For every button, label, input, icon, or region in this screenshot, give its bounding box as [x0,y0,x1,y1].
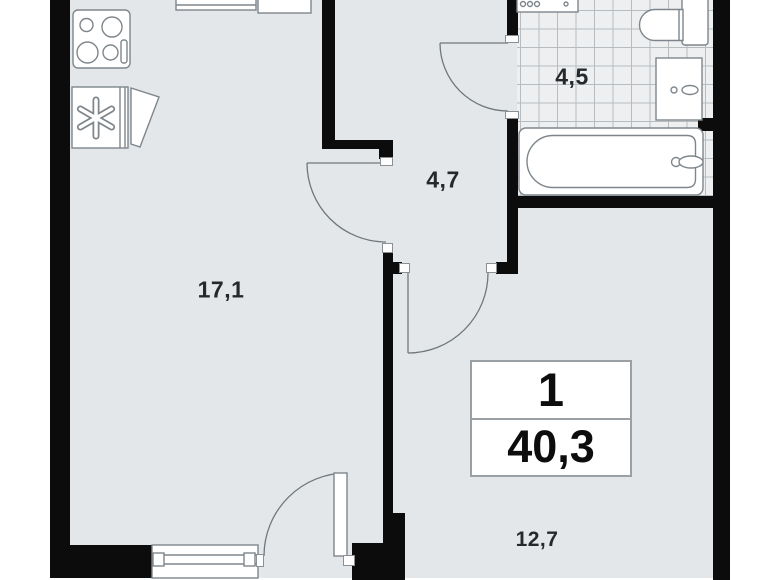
jamb-living-door [380,157,393,166]
kitchen-sink-counter-icon [258,0,311,13]
jamb-bedroom-door-left [399,263,410,273]
stove-burner-small-2 [103,45,118,60]
living-door-arc [307,163,386,242]
jamb-entrance-door [343,555,355,566]
bathtub-faucet [679,156,703,168]
sink-faucet [682,86,698,95]
jamb-bathroom-door-top [505,35,519,43]
window-end-block-right [244,553,255,566]
jamb-bedroom-door-right [486,263,497,273]
room-count-value: 1 [472,362,630,420]
window-frame [152,545,258,578]
sink-drain [671,87,677,93]
floorplan-canvas: 17,1 4,7 4,5 12,7 1 40,3 [0,0,780,580]
jamb-bathroom-door-bottom [505,111,519,119]
fixtures-layer [0,0,780,580]
jamb-divider-top [382,243,393,253]
area-label-hallway: 4,7 [426,167,459,194]
stove-handle [121,40,127,63]
area-label-bathroom: 4,5 [555,64,588,91]
toilet-icon [640,10,684,41]
jamb-window-right [256,554,264,567]
fridge-open-door [131,88,159,147]
stove-burner-large-1 [102,17,122,37]
toilet-tank [682,0,708,45]
area-label-living-kitchen: 17,1 [198,277,245,304]
total-area-value: 40,3 [472,420,630,476]
bathtub-inner [527,136,696,188]
washer-knob-2 [528,2,533,7]
bathroom-door-arc [440,43,508,111]
stove-burner-small-1 [80,19,93,32]
stove-burner-large-2 [77,42,98,63]
window-end-block-left [153,553,164,566]
bedroom-door-arc [408,273,488,353]
entrance-door-leaf [334,473,347,556]
washer-icon [517,0,578,12]
washer-knob-3 [535,2,540,7]
area-label-bedroom: 12,7 [516,528,559,552]
apartment-summary-box: 1 40,3 [470,360,632,477]
washer-knob-1 [521,2,526,7]
washer-knob-4 [564,2,568,6]
